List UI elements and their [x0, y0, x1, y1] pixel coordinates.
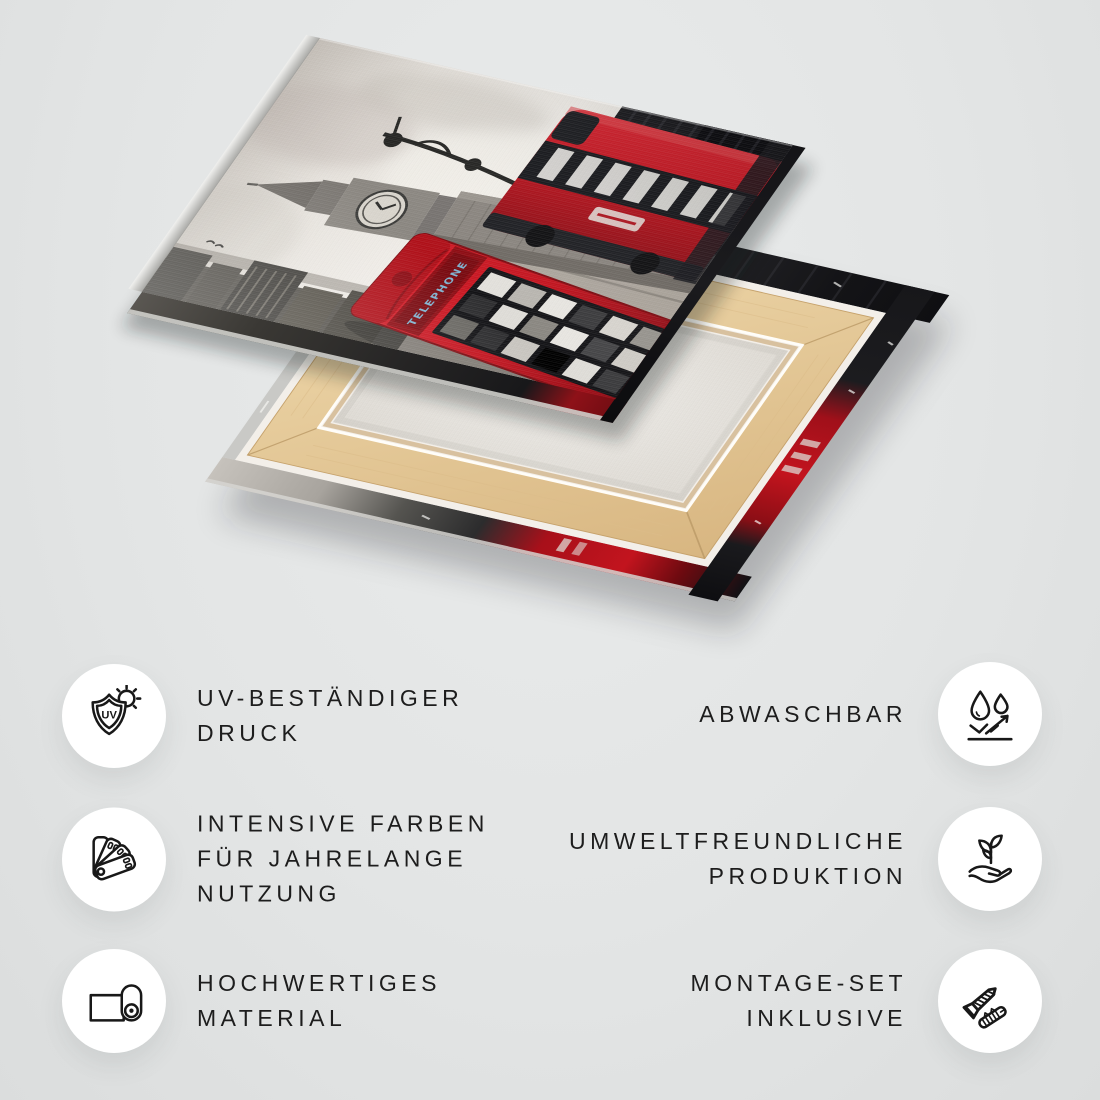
feature-quality-material-label: HOCHWERTIGES MATERIAL — [197, 966, 441, 1036]
feature-mounting-set: MONTAGE-SET INKLUSIVE — [691, 949, 1042, 1053]
feature-washable-label: ABWASCHBAR — [699, 697, 907, 732]
feature-eco-production-label: UMWELTFREUNDLICHE PRODUKTION — [569, 824, 907, 894]
feature-eco-production: UMWELTFREUNDLICHE PRODUKTION — [569, 807, 1042, 911]
svg-text:UV: UV — [101, 709, 117, 721]
screw-dowel-icon — [938, 949, 1042, 1053]
feature-quality-material: HOCHWERTIGES MATERIAL — [62, 949, 441, 1053]
feature-intensive-colors: INTENSIVE FARBEN FÜR JAHRELANGE NUTZUNG — [62, 807, 489, 912]
hand-plant-icon — [938, 807, 1042, 911]
feature-washable: ABWASCHBAR — [699, 662, 1042, 766]
feature-uv-print: UV UV-BESTÄNDIGER DRUCK — [62, 664, 463, 768]
uv-shield-sun-icon: UV — [62, 664, 166, 768]
feature-mounting-set-label: MONTAGE-SET INKLUSIVE — [691, 966, 907, 1036]
feature-uv-print-label: UV-BESTÄNDIGER DRUCK — [197, 681, 463, 751]
feature-intensive-colors-label: INTENSIVE FARBEN FÜR JAHRELANGE NUTZUNG — [197, 807, 489, 912]
water-drops-surface-icon — [938, 662, 1042, 766]
product-mockup-graphic: TELEPHONE — [0, 0, 1100, 680]
product-mockup: TELEPHONE — [0, 0, 1100, 680]
color-swatch-fan-icon — [62, 807, 166, 911]
canvas-roll-icon — [62, 949, 166, 1053]
